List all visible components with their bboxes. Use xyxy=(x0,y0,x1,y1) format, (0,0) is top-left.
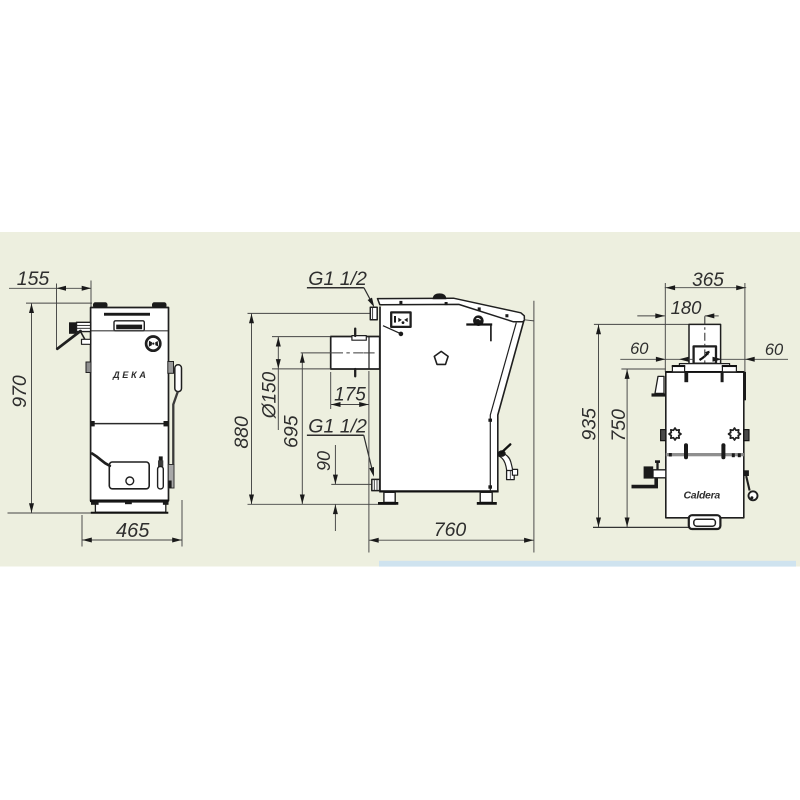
svg-text:880: 880 xyxy=(231,416,253,449)
svg-text:G1 1/2: G1 1/2 xyxy=(308,415,367,437)
svg-text:465: 465 xyxy=(116,520,150,542)
svg-text:60: 60 xyxy=(630,340,649,358)
svg-text:60: 60 xyxy=(765,341,784,359)
svg-text:695: 695 xyxy=(281,415,303,448)
svg-text:Ø150: Ø150 xyxy=(260,371,281,419)
svg-text:935: 935 xyxy=(579,408,601,441)
svg-text:Caldera: Caldera xyxy=(684,489,721,501)
svg-text:155: 155 xyxy=(17,268,50,290)
svg-text:G1 1/2: G1 1/2 xyxy=(308,268,367,290)
svg-text:ДЕКА: ДЕКА xyxy=(112,370,148,380)
svg-text:750: 750 xyxy=(608,409,630,442)
svg-text:180: 180 xyxy=(671,297,703,318)
svg-text:365: 365 xyxy=(692,270,724,291)
svg-text:90: 90 xyxy=(314,451,334,471)
svg-text:760: 760 xyxy=(434,519,467,541)
svg-text:970: 970 xyxy=(9,375,31,408)
